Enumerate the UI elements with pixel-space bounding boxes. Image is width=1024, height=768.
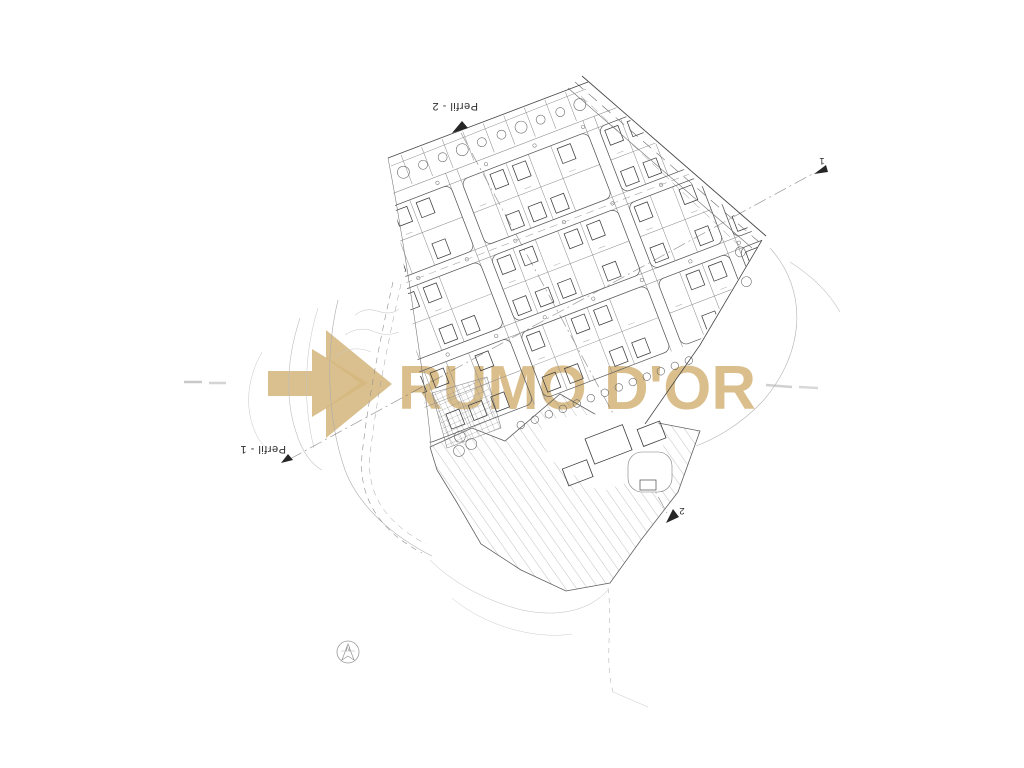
lot-line [545, 100, 556, 129]
building-footprint [602, 261, 621, 281]
building-footprint [461, 315, 480, 335]
building-footprint [761, 288, 780, 308]
building-footprint [621, 166, 640, 186]
section-marker-2-arrow-icon [666, 509, 679, 523]
tree-icon [496, 129, 508, 141]
manhole-icon [435, 181, 439, 185]
perfil-2-label: Perfil - 2 [432, 100, 478, 112]
tree-icon [513, 119, 529, 135]
lot-line [732, 164, 757, 229]
building-footprint [571, 314, 590, 334]
lot-line [504, 116, 515, 145]
lot-line [401, 155, 412, 184]
manhole-icon [532, 143, 536, 147]
building-footprint [708, 261, 727, 281]
block-centerline [722, 181, 785, 205]
building-footprint [513, 296, 532, 316]
building-footprint [564, 229, 583, 249]
building-footprint [432, 239, 451, 259]
lot-annotation-mark [569, 169, 576, 172]
building-footprint [557, 278, 576, 298]
lot-line [513, 248, 538, 313]
perfil-1-label: Perfil - 1 [240, 443, 286, 455]
manhole-icon [707, 164, 711, 168]
block-centerline [355, 217, 462, 258]
site-plan-drawing: RUMO D'OR [0, 0, 1024, 768]
block-outline [710, 148, 799, 238]
building-footprint [634, 202, 653, 222]
block-centerline [474, 164, 600, 212]
watermark: RUMO D'OR [184, 330, 818, 438]
manhole-icon [484, 162, 488, 166]
lot-line [702, 263, 727, 328]
watermark-dash-right [766, 385, 792, 387]
building-footprint [754, 203, 773, 223]
lot-annotation-mark [662, 134, 669, 137]
manhole-icon [494, 334, 498, 338]
lot-line [528, 154, 553, 219]
main-road-edge [568, 88, 752, 248]
lot-annotation-mark [699, 120, 706, 123]
manhole-icon [368, 294, 372, 298]
lot-annotation-mark [646, 228, 653, 231]
block-centerline [384, 294, 491, 335]
building-footprint [526, 331, 545, 351]
lot-line [524, 108, 535, 137]
street-edge [676, 85, 765, 317]
building-footprint [387, 256, 406, 276]
lot-annotation-mark [758, 273, 765, 276]
building-footprint [423, 283, 442, 303]
tree-icon [437, 151, 449, 163]
building-footprint [535, 287, 554, 307]
lot-annotation-mark [406, 232, 413, 235]
lot-line [410, 200, 435, 265]
manhole-icon [338, 218, 342, 222]
lot-annotation-mark [728, 196, 735, 199]
tree-icon [396, 165, 412, 181]
building-footprint [551, 193, 570, 213]
lot-line [506, 163, 531, 228]
lot-line [417, 285, 442, 350]
lot-line [703, 87, 728, 152]
lot-line [650, 195, 675, 260]
building-footprint [416, 198, 435, 218]
section-marker-2-label: 2 [679, 505, 684, 516]
manhole-icon [387, 199, 391, 203]
lot-annotation-mark [554, 263, 561, 266]
perfil-2-arrow-icon [452, 121, 468, 133]
building-footprint [528, 202, 547, 222]
lot-line [483, 123, 494, 152]
site-plan-canvas: RUMO D'OR [0, 0, 1024, 768]
lot-annotation-mark [435, 309, 442, 312]
street-edge [324, 73, 707, 220]
lot-annotation-mark [583, 340, 590, 343]
lot-annotation-mark [524, 187, 531, 190]
manhole-icon [629, 106, 633, 110]
building-footprint [627, 117, 646, 137]
building-footprint [519, 246, 538, 266]
building-footprint [394, 206, 413, 226]
tree-icon [476, 136, 488, 148]
building-footprint [401, 291, 420, 311]
lot-annotation-mark [676, 304, 683, 307]
building-footprint [594, 305, 613, 325]
building-footprint [439, 324, 458, 344]
building-footprint [695, 226, 714, 246]
lot-line [672, 187, 697, 252]
manhole-icon [543, 315, 547, 319]
main-road-centerline [575, 82, 759, 242]
building-footprint [349, 224, 368, 244]
lot-line [551, 146, 576, 211]
north-compass: N [337, 641, 359, 663]
lot-line [535, 240, 560, 305]
building-footprint [739, 162, 758, 182]
lot-annotation-mark [617, 151, 624, 154]
lot-line [422, 147, 433, 176]
block-centerline [752, 257, 815, 281]
lot-line [439, 276, 464, 341]
building-footprint [702, 311, 721, 331]
lot-annotation-mark [599, 246, 606, 249]
building-footprint [512, 161, 531, 181]
block-centerline [693, 104, 756, 128]
building-footprint [768, 238, 787, 258]
lot-line [580, 222, 605, 287]
tree-icon [740, 275, 753, 288]
lot-annotation-mark [720, 287, 727, 290]
lot-annotation-mark [480, 204, 487, 207]
street-centerline [356, 155, 739, 302]
lot-line [483, 172, 508, 237]
site-boundary [388, 82, 588, 158]
building-footprint [724, 302, 743, 322]
lot-line [762, 240, 787, 305]
culdesac-loop [628, 452, 672, 492]
lot-line [365, 217, 390, 282]
lot-annotation-mark [509, 280, 516, 283]
manhole-icon [688, 259, 692, 263]
building-footprint [365, 265, 384, 285]
tree-icon [572, 97, 588, 113]
tree-icon [554, 106, 566, 118]
building-footprint [650, 243, 669, 263]
block-centerline [640, 209, 711, 236]
lot-line [643, 110, 668, 175]
lot-line [558, 231, 583, 296]
watermark-dash-right [799, 387, 818, 388]
tree-icon [417, 159, 429, 171]
building-footprint [687, 94, 706, 114]
tree-icon [535, 114, 547, 126]
building-footprint [497, 255, 516, 275]
block-centerline [503, 241, 629, 289]
logo-arrow-icon [268, 371, 312, 396]
building-footprint [643, 158, 662, 178]
lot-line [387, 208, 412, 273]
manhole-icon [591, 296, 595, 300]
lot-annotation-mark [628, 322, 635, 325]
building-footprint [746, 247, 765, 267]
building-footprint [725, 126, 744, 146]
building-footprint [686, 270, 705, 290]
building-footprint [557, 144, 576, 164]
block-outline [680, 72, 769, 162]
lot-annotation-mark [361, 249, 368, 252]
building-footprint [490, 169, 509, 189]
manhole-icon [678, 87, 682, 91]
building-footprint [679, 185, 698, 205]
lot-annotation-mark [691, 210, 698, 213]
compass-n-label: N [346, 647, 350, 653]
block-centerline [670, 286, 741, 313]
section-marker-1-label: 1 [819, 155, 824, 166]
block-outline [739, 225, 828, 315]
building-footprint [587, 220, 606, 240]
lot-line [679, 272, 704, 337]
